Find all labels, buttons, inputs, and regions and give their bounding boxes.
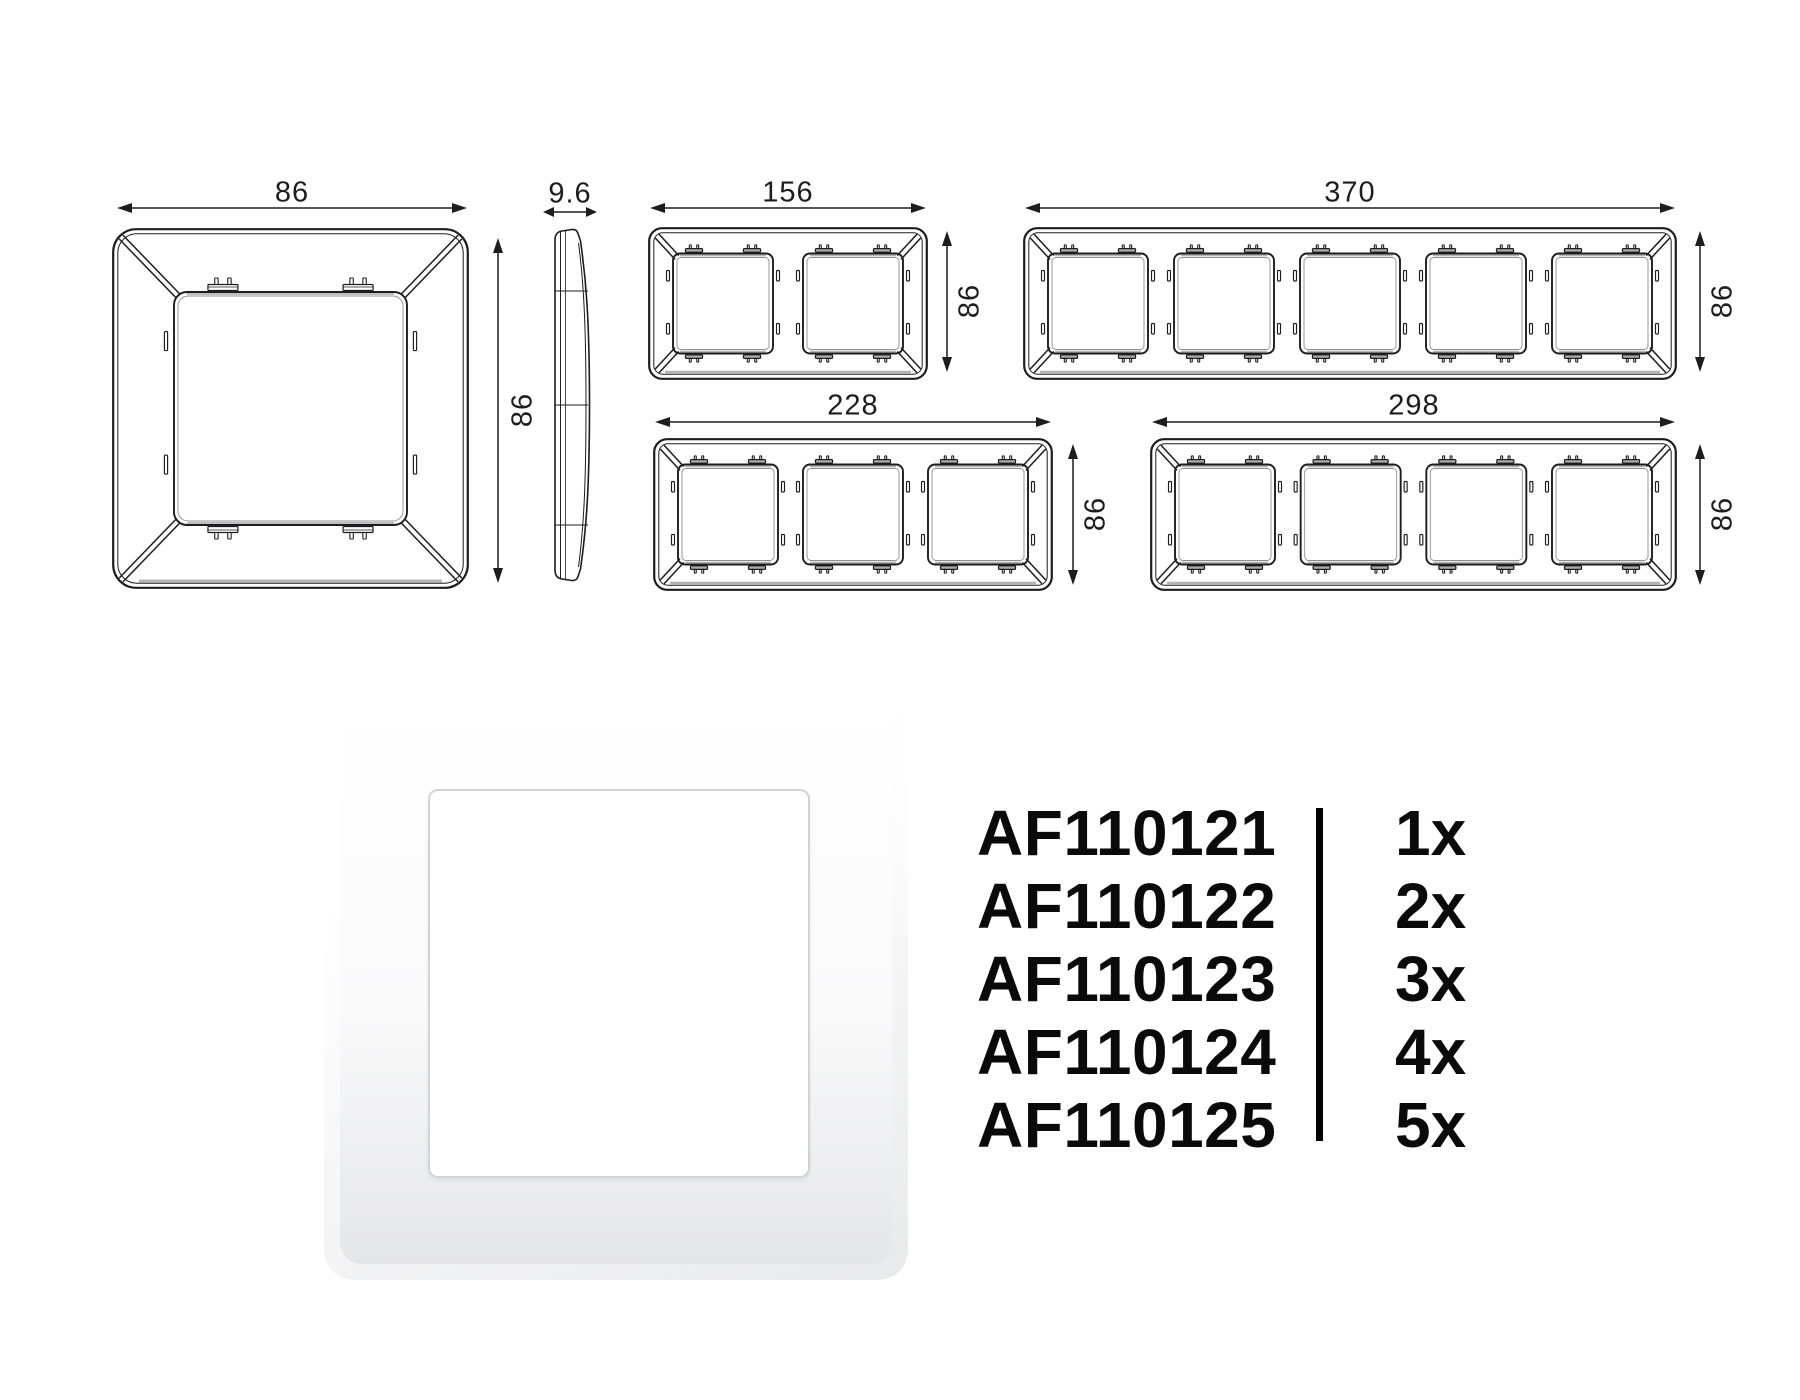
product-row: AF110125 5x — [977, 1088, 1617, 1161]
product-render-single-frame — [324, 686, 908, 1280]
drawing-3gang-frame — [653, 438, 1053, 591]
render-opening — [428, 789, 810, 1178]
product-code: AF110121 — [977, 796, 1318, 870]
drawing-side-profile — [546, 224, 596, 590]
product-quantity: 1x — [1395, 796, 1466, 870]
product-code: AF110122 — [977, 869, 1318, 943]
product-quantity: 3x — [1395, 942, 1466, 1016]
dim-5gang-width: 370 — [1324, 177, 1375, 210]
product-quantity: 2x — [1395, 869, 1466, 943]
product-row: AF110124 4x — [977, 1015, 1617, 1088]
drawing-4gang-frame — [1150, 438, 1677, 591]
dim-5gang-height: 86 — [1707, 284, 1740, 318]
product-row: AF110123 3x — [977, 942, 1617, 1015]
dim-2gang-width: 156 — [762, 177, 813, 210]
dim-3gang-width: 228 — [827, 390, 878, 423]
product-quantity: 4x — [1395, 1015, 1466, 1089]
dim-3gang-height: 86 — [1080, 497, 1113, 531]
product-code: AF110125 — [977, 1088, 1318, 1162]
drawing-single-frame-front — [112, 228, 469, 589]
dim-2gang-height: 86 — [954, 284, 987, 318]
dim-single-height: 86 — [507, 393, 540, 427]
product-quantity: 5x — [1395, 1088, 1466, 1162]
dim-profile-depth: 9.6 — [548, 178, 591, 211]
table-divider — [1316, 808, 1323, 1141]
product-row: AF110122 2x — [977, 869, 1617, 942]
drawing-2gang-frame — [648, 227, 928, 380]
product-code: AF110124 — [977, 1015, 1318, 1089]
dim-4gang-width: 298 — [1388, 390, 1439, 423]
dim-4gang-height: 86 — [1707, 497, 1740, 531]
frame-datasheet: 86 9.6 156 370 228 298 86 86 86 86 86 AF… — [0, 0, 1800, 1400]
product-code: AF110123 — [977, 942, 1318, 1016]
product-row: AF110121 1x — [977, 796, 1617, 869]
drawing-5gang-frame — [1023, 227, 1677, 380]
dim-single-width: 86 — [275, 177, 309, 210]
product-table: AF110121 1x AF110122 2x AF110123 3x AF11… — [977, 796, 1617, 1161]
